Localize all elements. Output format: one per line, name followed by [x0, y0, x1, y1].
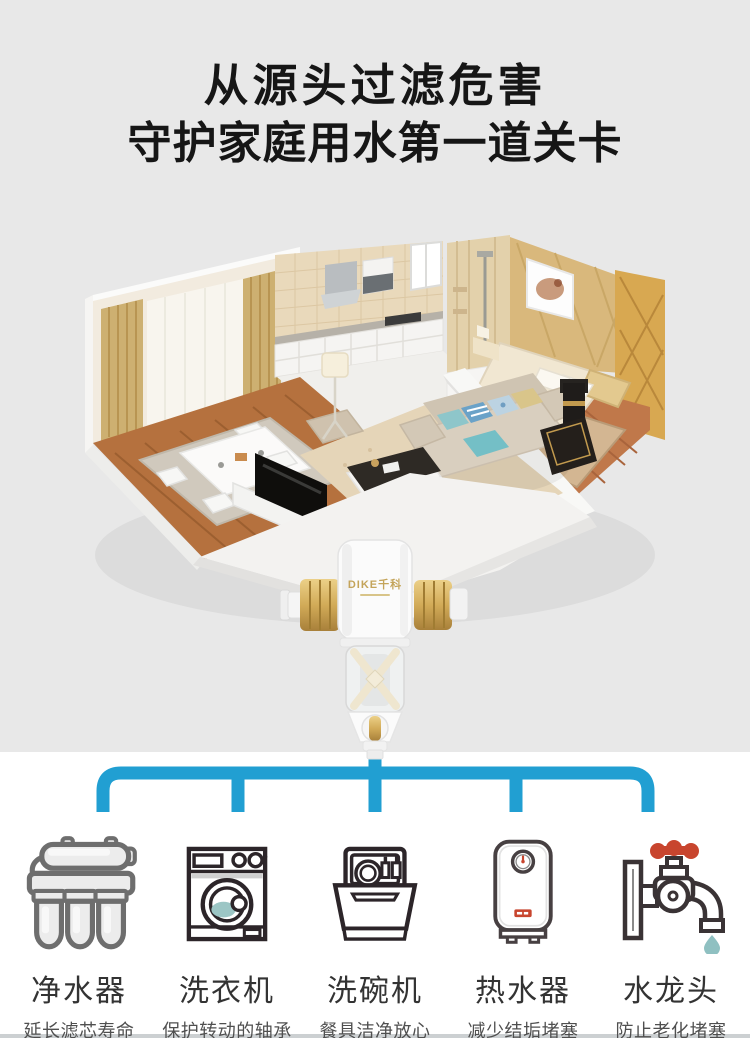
brand-text: DIKE千科 — [348, 577, 402, 591]
appliance-faucet: 水龙头 防止老化堵塞 — [598, 826, 744, 1038]
water-purifier-icon — [6, 826, 152, 954]
page-title: 从源头过滤危害 守护家庭用水第一道关卡 — [0, 58, 750, 172]
appliance-washing-machine: 洗衣机 保护转动的轴承 — [154, 826, 300, 1038]
appliance-name: 洗碗机 — [302, 966, 448, 1010]
washing-machine-icon — [154, 826, 300, 954]
water-heater-icon — [450, 826, 596, 954]
appliance-desc: 延长滤芯寿命 — [6, 1017, 152, 1038]
promo-page: 从源头过滤危害 守护家庭用水第一道关卡 — [0, 0, 750, 1038]
appliance-desc: 餐具洁净放心 — [302, 1017, 448, 1038]
appliance-desc: 减少结垢堵塞 — [450, 1017, 596, 1038]
appliance-dishwasher: 洗碗机 餐具洁净放心 — [302, 826, 448, 1038]
dishwasher-icon — [302, 826, 448, 954]
appliance-desc: 保护转动的轴承 — [154, 1017, 300, 1038]
product-image: DIKE千科 — [280, 528, 470, 760]
faucet-icon — [598, 826, 744, 954]
title-line-2: 守护家庭用水第一道关卡 — [0, 116, 750, 172]
appliance-name: 水龙头 — [598, 966, 744, 1010]
appliance-name: 净水器 — [6, 966, 152, 1010]
appliance-row: 净水器 延长滤芯寿命 — [6, 826, 744, 1038]
appliance-desc: 防止老化堵塞 — [598, 1017, 744, 1038]
appliance-water-heater: 热水器 减少结垢堵塞 — [450, 826, 596, 1038]
appliance-water-purifier: 净水器 延长滤芯寿命 — [6, 826, 152, 1038]
appliance-name: 洗衣机 — [154, 966, 300, 1010]
title-line-1: 从源头过滤危害 — [0, 58, 750, 114]
appliance-name: 热水器 — [450, 966, 596, 1010]
